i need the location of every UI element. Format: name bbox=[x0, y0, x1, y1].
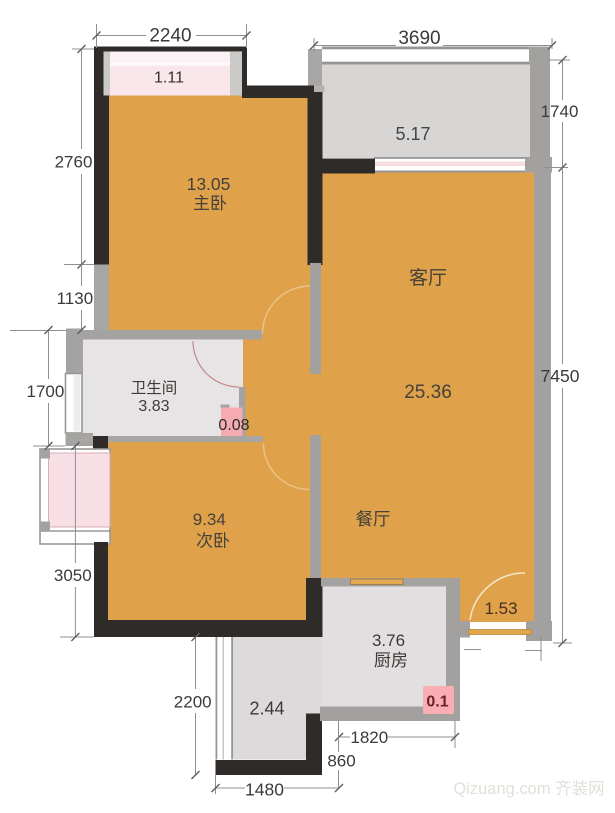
svg-text:2760: 2760 bbox=[55, 153, 93, 172]
svg-text:25.36: 25.36 bbox=[404, 382, 452, 403]
svg-text:1480: 1480 bbox=[245, 780, 284, 800]
svg-text:3.83: 3.83 bbox=[138, 398, 169, 415]
svg-text:1740: 1740 bbox=[541, 102, 579, 121]
svg-text:3050: 3050 bbox=[54, 566, 92, 585]
svg-text:Qizuang.com 齐装网: Qizuang.com 齐装网 bbox=[453, 779, 604, 798]
svg-text:主卧: 主卧 bbox=[193, 194, 227, 213]
svg-text:1.53: 1.53 bbox=[484, 599, 517, 618]
svg-text:客厅: 客厅 bbox=[409, 267, 447, 289]
svg-text:次卧: 次卧 bbox=[196, 532, 230, 551]
svg-text:0.08: 0.08 bbox=[218, 417, 249, 434]
svg-text:5.17: 5.17 bbox=[395, 124, 430, 144]
svg-text:860: 860 bbox=[327, 752, 355, 771]
svg-text:7450: 7450 bbox=[541, 366, 580, 386]
svg-text:0.1: 0.1 bbox=[426, 694, 448, 711]
svg-text:餐厅: 餐厅 bbox=[356, 509, 391, 529]
svg-text:厨房: 厨房 bbox=[374, 651, 408, 670]
svg-text:13.05: 13.05 bbox=[187, 174, 231, 194]
svg-text:3.76: 3.76 bbox=[372, 631, 405, 650]
svg-text:2240: 2240 bbox=[149, 26, 191, 47]
svg-text:1.11: 1.11 bbox=[154, 70, 184, 87]
svg-text:9.34: 9.34 bbox=[193, 510, 226, 529]
svg-text:1820: 1820 bbox=[350, 728, 388, 747]
svg-text:1700: 1700 bbox=[26, 382, 64, 401]
svg-text:1130: 1130 bbox=[57, 289, 94, 308]
svg-text:3690: 3690 bbox=[398, 28, 440, 49]
svg-text:2200: 2200 bbox=[174, 693, 212, 712]
svg-text:卫生间: 卫生间 bbox=[131, 379, 178, 397]
svg-text:2.44: 2.44 bbox=[249, 699, 284, 719]
